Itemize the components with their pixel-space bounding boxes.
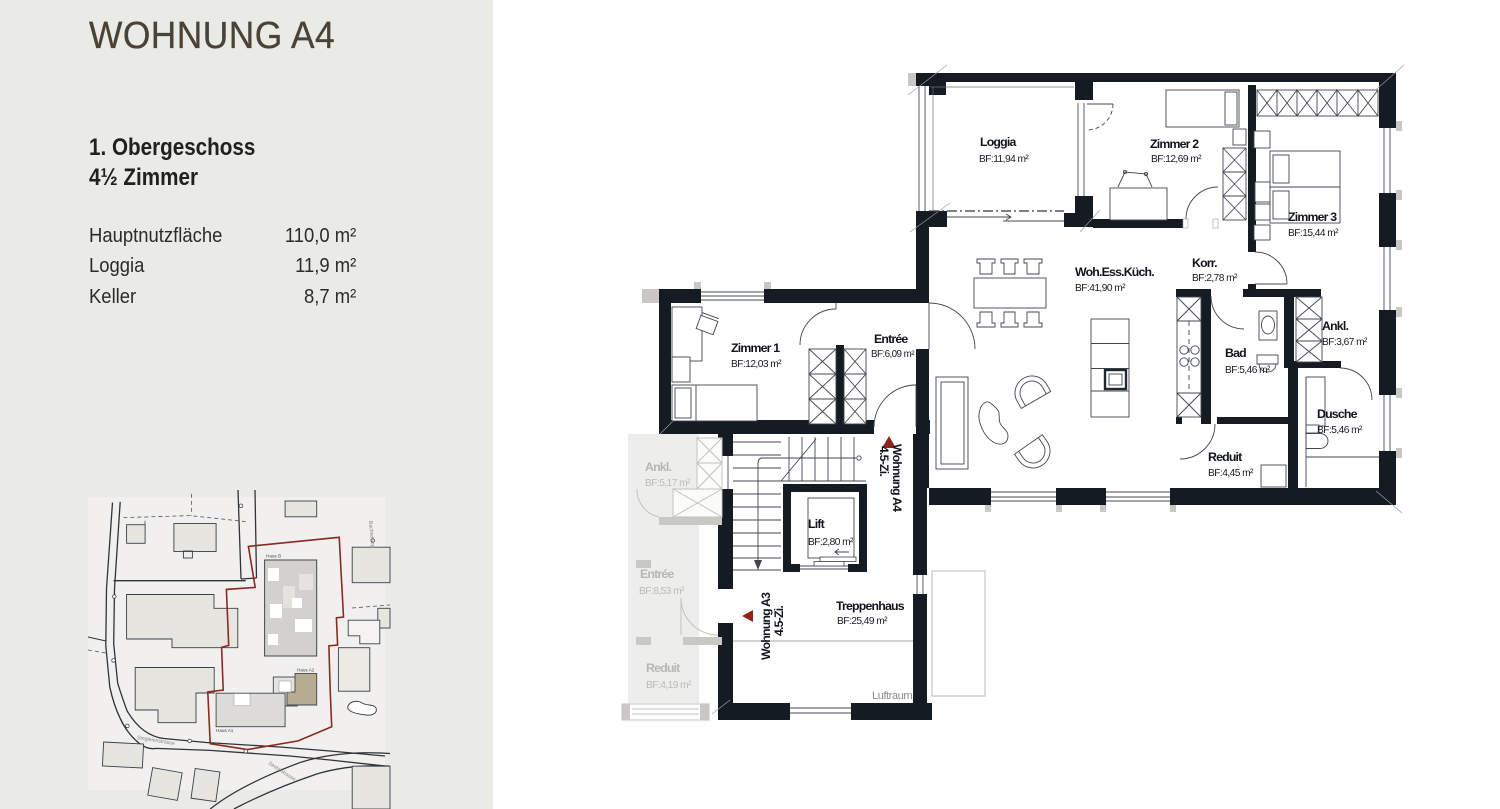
svg-text:Entrée: Entrée (874, 332, 908, 346)
svg-text:Lift: Lift (808, 517, 825, 531)
svg-text:BF:15,44 m²: BF:15,44 m² (1288, 228, 1339, 239)
svg-text:BF:41,90 m²: BF:41,90 m² (1075, 283, 1126, 294)
svg-text:Korr.: Korr. (1192, 256, 1217, 270)
svg-text:Zimmer 1: Zimmer 1 (731, 341, 780, 355)
svg-text:BF:4,45 m²: BF:4,45 m² (1208, 468, 1254, 479)
svg-text:BF:12,03 m²: BF:12,03 m² (731, 359, 782, 370)
svg-text:BF:3,67 m²: BF:3,67 m² (1322, 337, 1368, 348)
svg-text:BF:6,09 m²: BF:6,09 m² (871, 349, 915, 360)
svg-text:Wohnung A3: Wohnung A3 (759, 592, 773, 660)
svg-text:BF:11,94 m²: BF:11,94 m² (979, 154, 1029, 165)
svg-text:Bad: Bad (1225, 346, 1246, 360)
svg-text:Treppenhaus: Treppenhaus (836, 599, 905, 613)
svg-text:Zimmer 2: Zimmer 2 (1150, 137, 1199, 151)
svg-text:BF:25,49 m²: BF:25,49 m² (837, 616, 888, 627)
svg-text:Loggia: Loggia (980, 135, 1016, 149)
svg-text:Dusche: Dusche (1317, 407, 1358, 421)
svg-text:4.5-Zi.: 4.5-Zi. (772, 606, 786, 636)
svg-text:BF:2,80 m²: BF:2,80 m² (808, 537, 854, 548)
svg-text:Entrée: Entrée (640, 567, 674, 581)
svg-text:Zimmer 3: Zimmer 3 (1288, 210, 1337, 224)
svg-text:BF:2,78 m²: BF:2,78 m² (1192, 273, 1238, 284)
svg-text:Reduit: Reduit (1208, 450, 1242, 464)
svg-text:BF:8,53 m²: BF:8,53 m² (639, 586, 685, 597)
svg-text:Woh.Ess.Küch.: Woh.Ess.Küch. (1075, 265, 1154, 279)
svg-text:Luftraum: Luftraum (872, 690, 912, 702)
svg-text:Reduit: Reduit (646, 661, 680, 675)
svg-text:Ankl.: Ankl. (1322, 319, 1348, 333)
svg-text:Haus B: Haus B (266, 554, 281, 559)
svg-text:BF:4,19 m²: BF:4,19 m² (646, 680, 692, 691)
svg-text:BF:5,17 m²: BF:5,17 m² (645, 478, 691, 489)
svg-text:Haus A2: Haus A2 (297, 668, 315, 673)
svg-text:BF:12,69 m²: BF:12,69 m² (1151, 154, 1202, 165)
svg-text:4.5-Zi.: 4.5-Zi. (877, 446, 891, 476)
svg-text:Ankl.: Ankl. (645, 460, 671, 474)
svg-text:BF:5,46 m²: BF:5,46 m² (1317, 425, 1363, 436)
svg-text:Haus A1: Haus A1 (216, 728, 234, 733)
svg-text:Wohnung A4: Wohnung A4 (890, 444, 904, 512)
svg-text:BF:5,46 m²: BF:5,46 m² (1225, 365, 1271, 376)
